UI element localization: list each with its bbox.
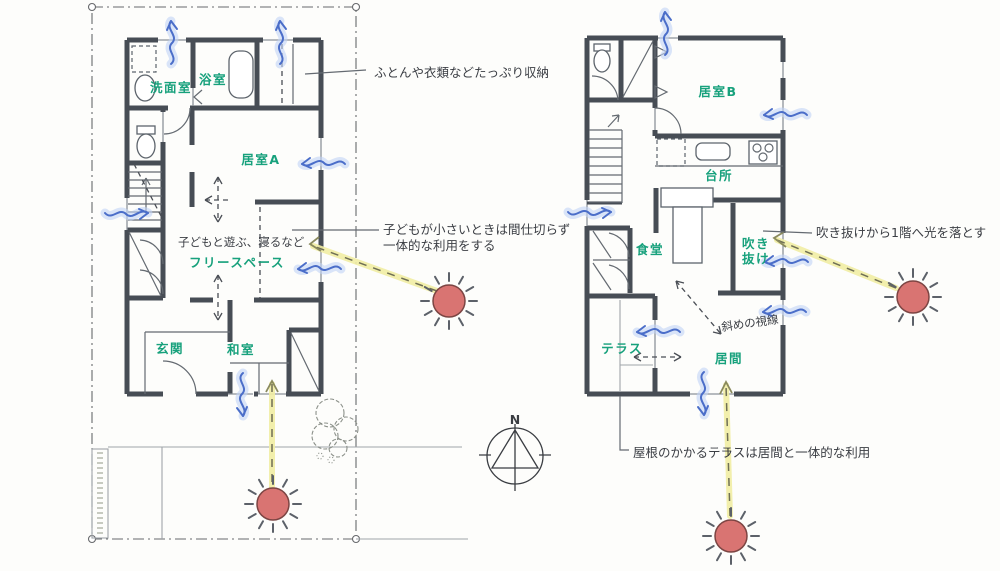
tree [312, 399, 358, 463]
annotation-storage: ふとんや衣類などたっぷり収納 [374, 65, 549, 80]
room-label-room-a: 居室A [241, 152, 280, 167]
floor2-dashed-lines [634, 281, 721, 357]
floor2-arrowheads [634, 281, 721, 361]
leader-storage [305, 70, 366, 74]
suns [245, 269, 941, 564]
room-label-room-b: 居室B [698, 84, 737, 99]
room-label-entrance: 玄関 [156, 341, 184, 356]
kitchen-sink [696, 143, 730, 160]
dining-table [673, 207, 702, 263]
annotation-partition-1: 子どもが小さいときは間仕切らず [383, 222, 570, 237]
room-label-terrace: テラス [601, 341, 643, 356]
refrigerator [657, 139, 685, 166]
annotation-terrace: 屋根のかかるテラスは居間と一体的な利用 [633, 445, 870, 460]
bathtub [229, 51, 253, 98]
sightline-note: 斜めの視線 [720, 312, 779, 334]
toilet-1f [137, 134, 155, 158]
room-label-dining: 食堂 [635, 242, 664, 257]
room-label-free-space: フリースペース [189, 255, 285, 270]
sun-south [703, 508, 759, 564]
toilet-2f [594, 50, 610, 72]
toilet-tank-1f [137, 126, 155, 134]
floor-plan-sketch: N 洗面室 浴室 居室A フリースペース 玄関 和室 子どもと遊ぶ、寝るなど 居… [0, 0, 1000, 571]
room-label-bath: 浴室 [199, 72, 227, 87]
annotation-light: 吹き抜けから1階へ光を落とす [816, 225, 986, 240]
room-label-tatami: 和室 [226, 342, 255, 357]
room-label-atrium-1: 吹き [742, 236, 770, 251]
sun-southwest [245, 476, 301, 532]
room-label-living: 居間 [715, 351, 743, 366]
room-label-washroom: 洗面室 [150, 80, 192, 95]
sun-rays [266, 232, 896, 516]
floor1-labels: 洗面室 浴室 居室A フリースペース 玄関 和室 子どもと遊ぶ、寝るなど [150, 72, 305, 357]
sun-center [421, 273, 477, 329]
compass-north-label: N [510, 412, 520, 427]
floor1-usage-note: 子どもと遊ぶ、寝るなど [178, 235, 305, 249]
compass: N [479, 412, 551, 491]
leader-light [763, 231, 812, 233]
annotation-partition-2: 一体的な利用をする [383, 238, 496, 253]
washing-machine [132, 46, 156, 72]
room-label-atrium-2: 抜け [742, 251, 770, 266]
site-ground-lines [108, 447, 468, 539]
compass-needle [479, 424, 551, 491]
leader-terrace [620, 396, 629, 450]
sun-east [885, 269, 941, 325]
room-label-kitchen: 台所 [705, 168, 733, 183]
plan-canvas: N 洗面室 浴室 居室A フリースペース 玄関 和室 子どもと遊ぶ、寝るなど 居… [0, 0, 1000, 571]
kitchen-island [661, 188, 713, 207]
